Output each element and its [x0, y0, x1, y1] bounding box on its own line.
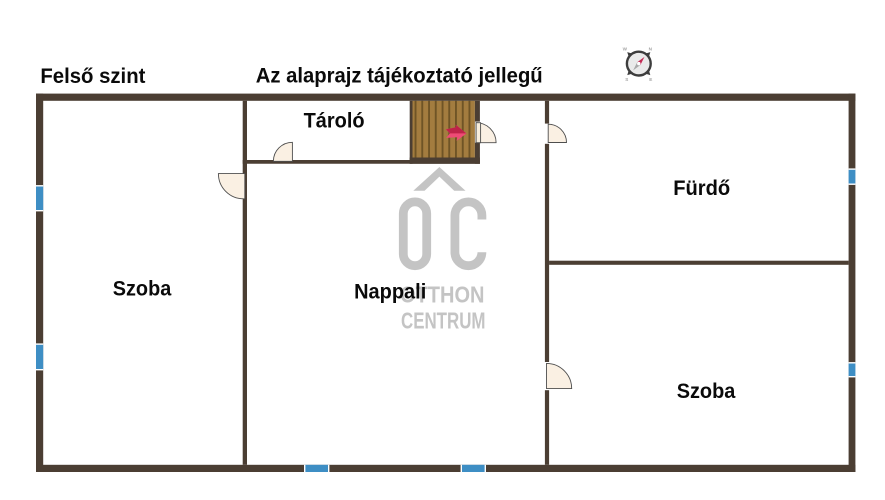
- svg-text:Felső szint: Felső szint: [40, 63, 145, 88]
- svg-text:Fürdő: Fürdő: [673, 175, 730, 200]
- svg-text:Az alaprajz tájékoztató jelleg: Az alaprajz tájékoztató jellegű: [256, 63, 543, 88]
- svg-text:W: W: [623, 46, 628, 51]
- svg-text:Szoba: Szoba: [113, 276, 172, 301]
- svg-text:Szoba: Szoba: [677, 378, 737, 403]
- svg-text:CENTRUM: CENTRUM: [401, 307, 486, 333]
- svg-text:S: S: [625, 77, 628, 82]
- svg-text:E: E: [649, 77, 652, 82]
- svg-text:Tároló: Tároló: [304, 108, 365, 133]
- svg-text:Nappali: Nappali: [354, 279, 426, 304]
